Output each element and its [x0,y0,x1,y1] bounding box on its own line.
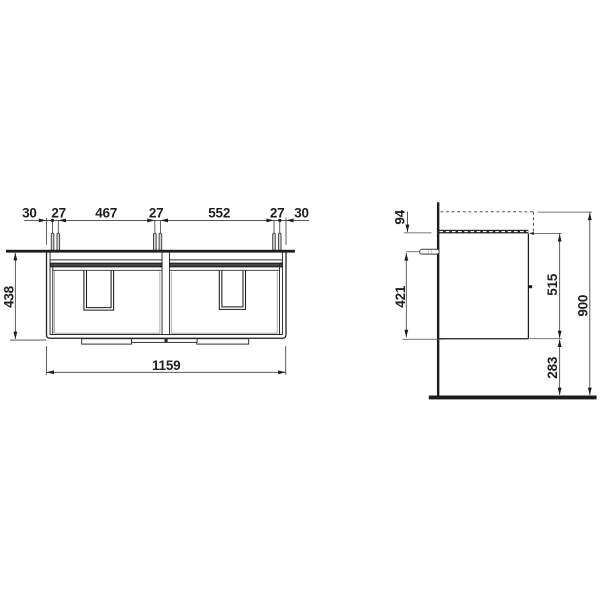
svg-text:283: 283 [545,356,560,379]
svg-text:421: 421 [393,285,408,308]
svg-text:900: 900 [576,295,591,317]
svg-text:30: 30 [294,206,309,221]
svg-text:27: 27 [149,206,164,221]
svg-text:94: 94 [393,209,408,224]
svg-text:552: 552 [208,206,230,221]
svg-text:1159: 1159 [152,358,180,373]
svg-text:467: 467 [95,206,117,221]
svg-text:515: 515 [545,273,560,296]
svg-text:27: 27 [51,206,66,221]
svg-text:30: 30 [22,206,37,221]
svg-text:27: 27 [270,206,285,221]
svg-text:438: 438 [2,285,17,308]
